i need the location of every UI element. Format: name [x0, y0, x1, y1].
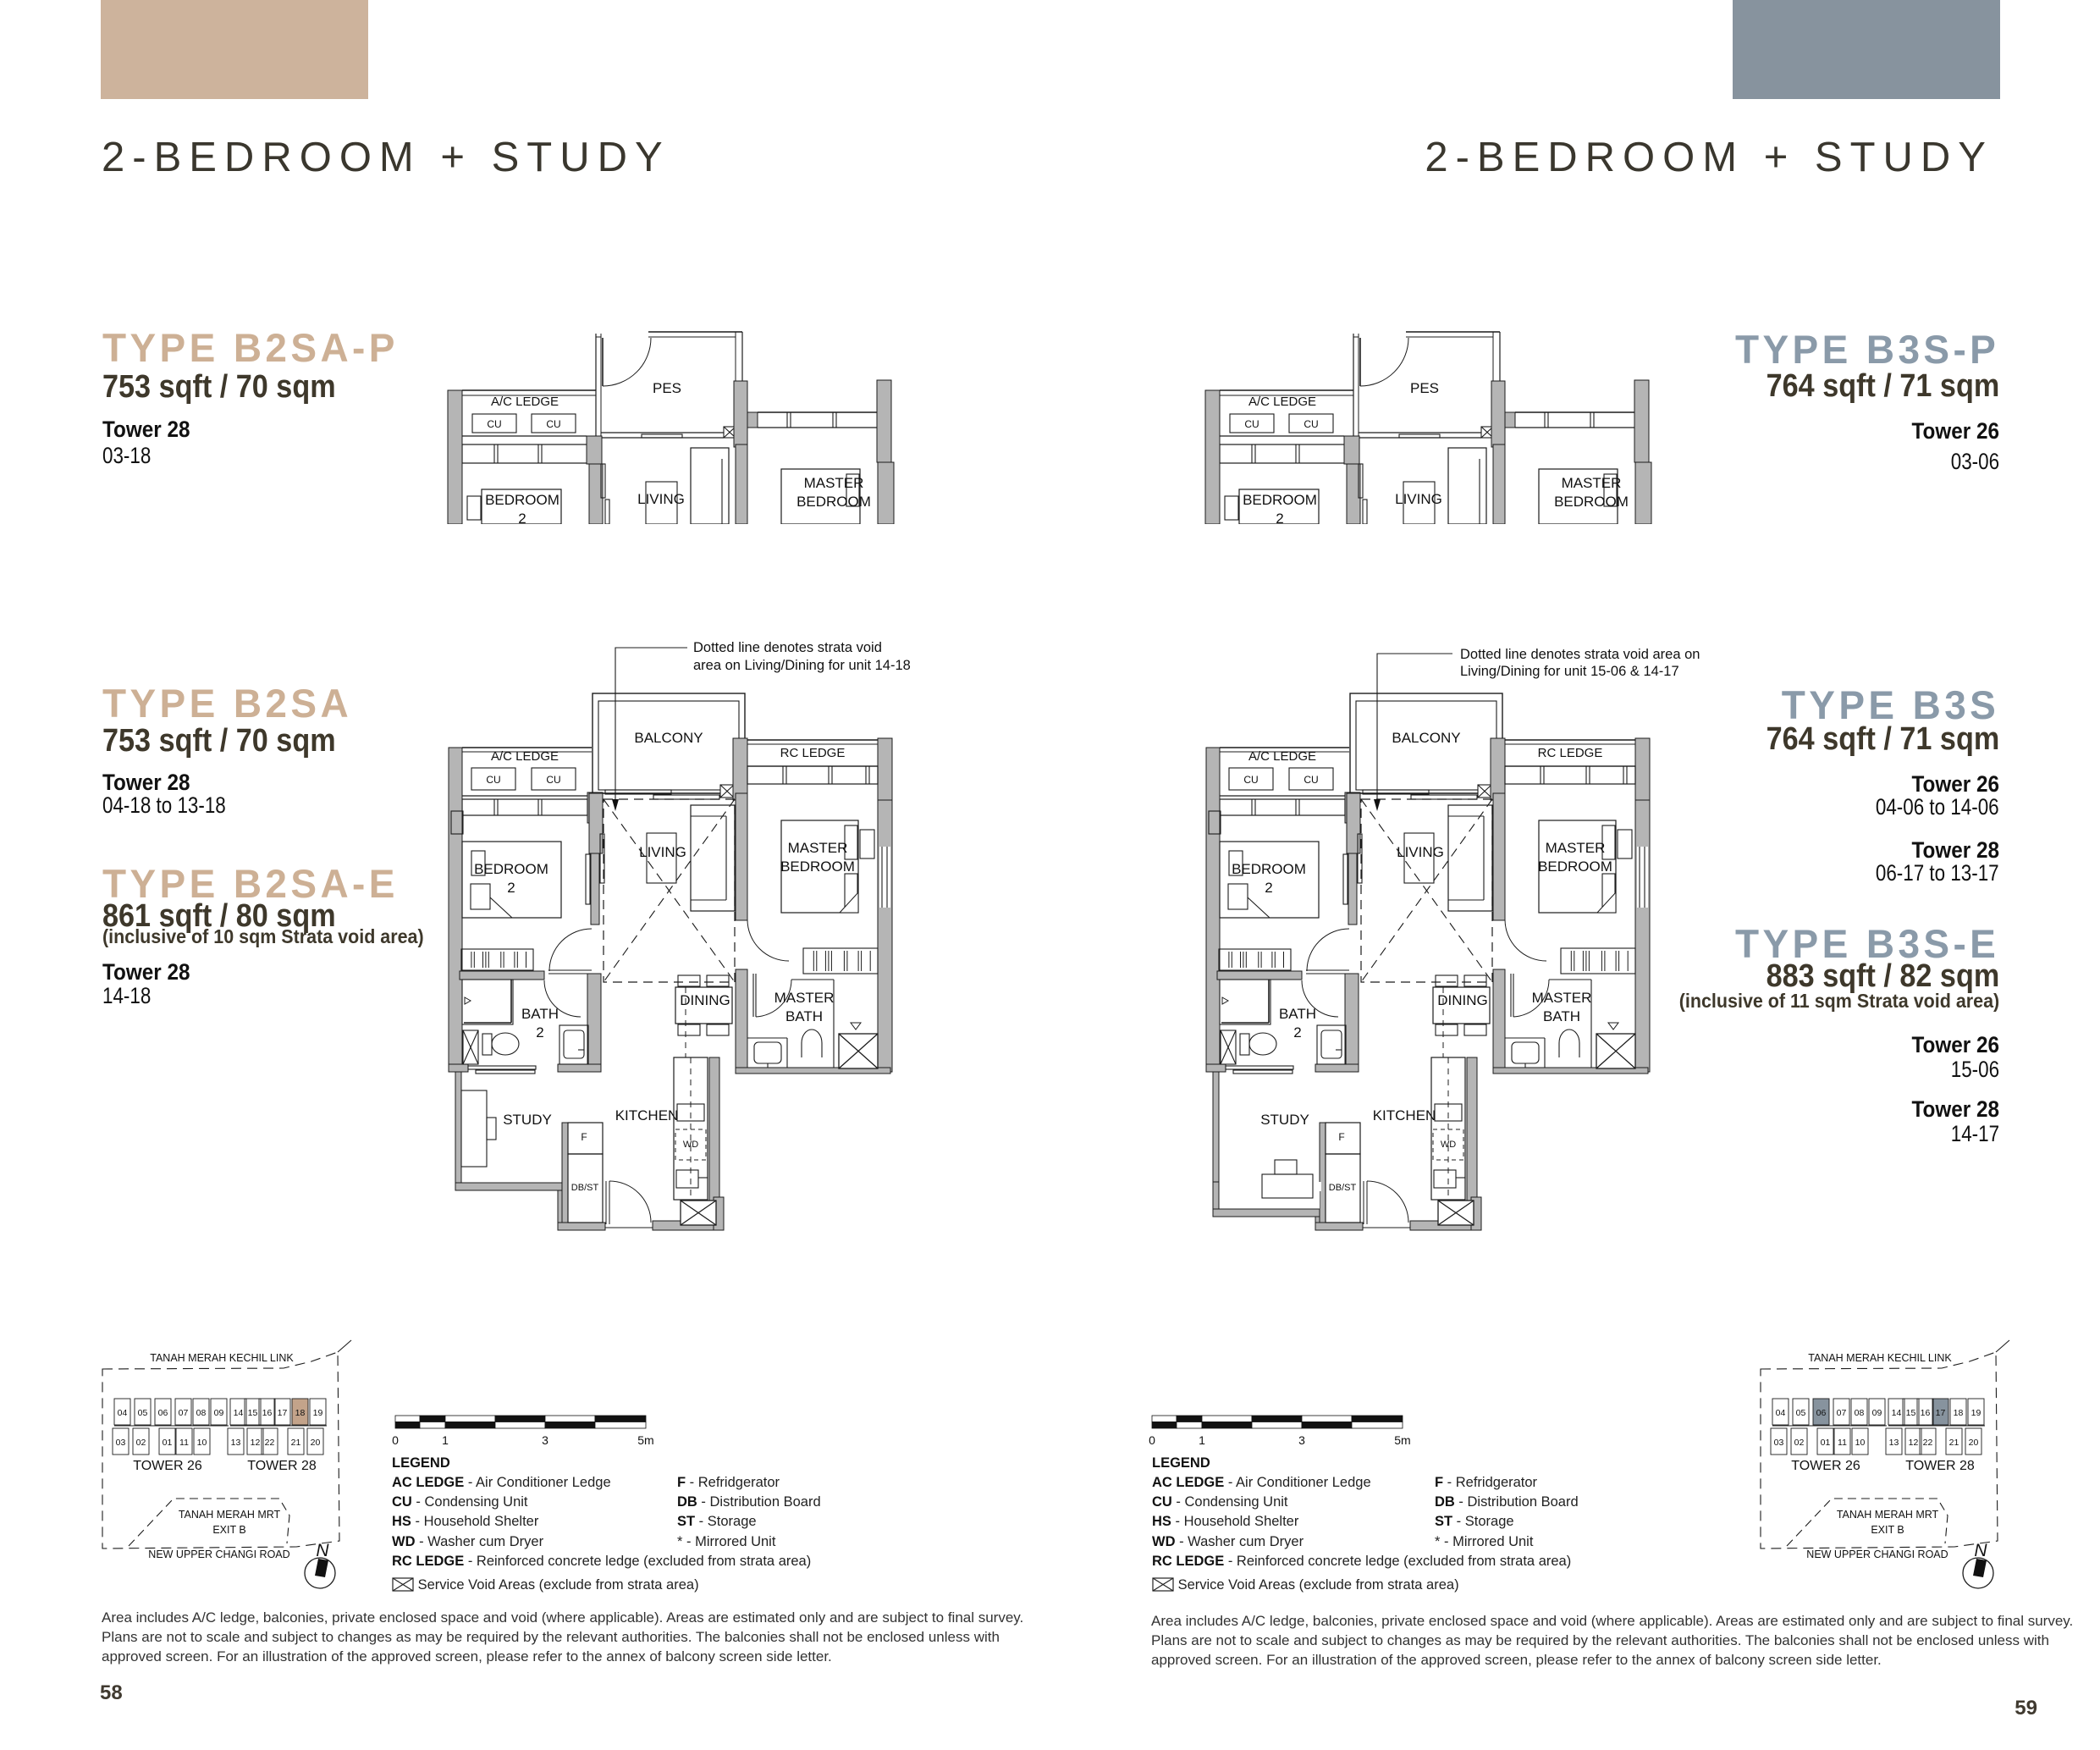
- svg-text:04: 04: [118, 1408, 128, 1418]
- svg-text:05: 05: [138, 1408, 148, 1418]
- svg-text:BATH: BATH: [521, 1006, 559, 1022]
- svg-text:Living/Dining for unit 15-06 &: Living/Dining for unit 15-06 & 14-17: [1460, 664, 1679, 679]
- svg-text:A/C LEDGE: A/C LEDGE: [491, 395, 559, 409]
- svg-text:Dotted line denotes strata voi: Dotted line denotes strata void area on: [1460, 647, 1700, 662]
- svg-text:18: 18: [295, 1408, 306, 1418]
- svg-text:07: 07: [179, 1408, 189, 1418]
- svg-text:PES: PES: [653, 380, 681, 396]
- svg-text:02: 02: [136, 1438, 146, 1448]
- svg-text:01: 01: [163, 1438, 173, 1448]
- svg-text:17: 17: [278, 1408, 288, 1418]
- svg-text:3: 3: [542, 1433, 548, 1447]
- svg-text:09: 09: [214, 1408, 224, 1418]
- svg-text:03: 03: [116, 1438, 126, 1448]
- svg-text:BEDROOM: BEDROOM: [485, 492, 559, 508]
- svg-text:CU: CU: [486, 774, 500, 786]
- svg-text:08: 08: [196, 1408, 207, 1418]
- svg-text:20: 20: [311, 1438, 321, 1448]
- svg-text:A/C LEDGE: A/C LEDGE: [491, 749, 559, 764]
- svg-text:TANAH MERAH MRT: TANAH MERAH MRT: [179, 1509, 281, 1521]
- svg-text:2: 2: [507, 880, 515, 896]
- svg-text:5m: 5m: [637, 1433, 653, 1447]
- svg-text:22: 22: [265, 1438, 275, 1448]
- svg-text:MASTER: MASTER: [804, 475, 864, 491]
- svg-text:EXIT B: EXIT B: [212, 1524, 245, 1536]
- svg-text:MASTER: MASTER: [788, 840, 848, 856]
- svg-text:CU: CU: [546, 774, 560, 786]
- svg-text:21: 21: [291, 1438, 301, 1448]
- svg-text:BEDROOM: BEDROOM: [474, 861, 548, 877]
- svg-text:DB/ST: DB/ST: [571, 1183, 599, 1193]
- svg-text:2: 2: [518, 511, 526, 527]
- svg-text:BEDROOM: BEDROOM: [796, 494, 871, 510]
- svg-text:Dotted line denotes strata voi: Dotted line denotes strata void: [693, 640, 882, 655]
- svg-text:1: 1: [442, 1433, 449, 1447]
- svg-text:06: 06: [158, 1408, 168, 1418]
- svg-text:LIVING: LIVING: [637, 491, 685, 507]
- svg-text:15: 15: [248, 1408, 258, 1418]
- svg-text:0: 0: [392, 1433, 399, 1447]
- svg-text:11: 11: [179, 1438, 189, 1448]
- svg-text:TOWER 28: TOWER 28: [247, 1459, 317, 1473]
- svg-text:DINING: DINING: [680, 992, 730, 1008]
- svg-text:12: 12: [251, 1438, 261, 1448]
- svg-text:F: F: [581, 1131, 587, 1143]
- svg-text:2: 2: [536, 1024, 543, 1041]
- svg-text:CU: CU: [487, 418, 501, 430]
- svg-text:BATH: BATH: [785, 1008, 823, 1024]
- svg-text:10: 10: [197, 1438, 207, 1448]
- svg-text:NEW UPPER CHANGI ROAD: NEW UPPER CHANGI ROAD: [148, 1549, 289, 1560]
- svg-text:STUDY: STUDY: [503, 1112, 552, 1128]
- svg-text:WD: WD: [683, 1140, 698, 1150]
- svg-text:14: 14: [234, 1408, 244, 1418]
- svg-text:area on Living/Dining for unit: area on Living/Dining for unit 14-18: [693, 658, 911, 673]
- svg-text:N: N: [316, 1541, 329, 1560]
- svg-text:TANAH MERAH KECHIL LINK: TANAH MERAH KECHIL LINK: [150, 1352, 294, 1364]
- svg-text:16: 16: [262, 1408, 273, 1418]
- svg-text:BEDROOM: BEDROOM: [780, 858, 855, 875]
- svg-text:KITCHEN: KITCHEN: [615, 1107, 679, 1123]
- svg-text:TOWER 26: TOWER 26: [133, 1459, 202, 1473]
- svg-text:19: 19: [313, 1408, 323, 1418]
- svg-text:13: 13: [231, 1438, 241, 1448]
- svg-text:RC LEDGE: RC LEDGE: [780, 746, 846, 760]
- svg-text:CU: CU: [546, 418, 560, 430]
- svg-text:BALCONY: BALCONY: [634, 730, 703, 746]
